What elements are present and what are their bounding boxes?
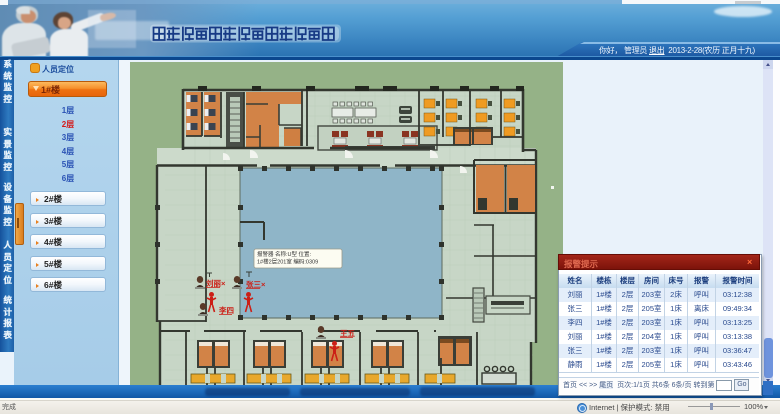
svg-text:李四: 李四: [218, 305, 234, 315]
svg-text:张三×: 张三×: [246, 280, 266, 289]
svg-text:刘丽×: 刘丽×: [206, 278, 226, 288]
svg-text:报警器 名称:U型 位置:: 报警器 名称:U型 位置:: [257, 250, 312, 258]
svg-text:1#楼2层201室 编码:0309: 1#楼2层201室 编码:0309: [257, 258, 318, 266]
svg-text:王五: 王五: [340, 329, 355, 338]
